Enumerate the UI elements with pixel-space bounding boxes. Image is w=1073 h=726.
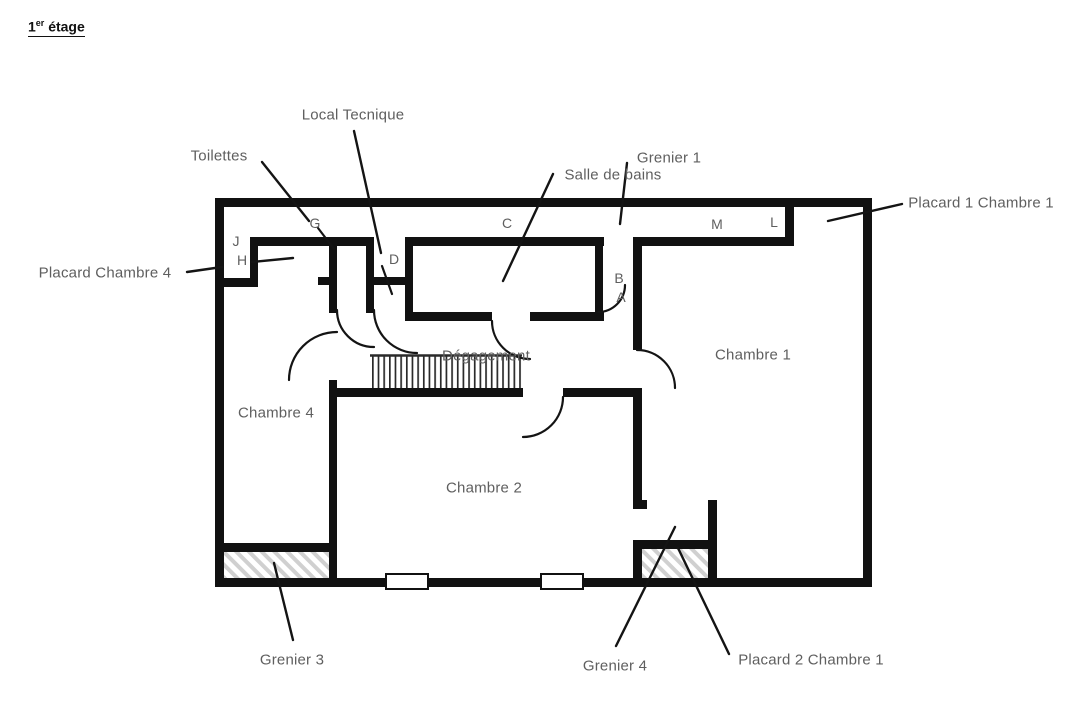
door-arc-chambre2	[523, 397, 563, 437]
window-chambre2-left	[386, 574, 428, 589]
room-label-placard-chambre-4: Placard Chambre 4	[39, 265, 172, 282]
leader-local-technique	[354, 131, 381, 253]
outer-wall-left	[215, 198, 224, 587]
door-letter-b: B	[614, 270, 623, 286]
room-label-toilettes: Toilettes	[191, 148, 248, 165]
floorplan-page: 1er étage Toilettes Local Tecnique Salle…	[0, 0, 1073, 726]
door-letter-m: M	[711, 216, 723, 232]
door-letter-g: G	[310, 215, 321, 231]
room-label-grenier-4: Grenier 4	[583, 658, 647, 675]
door-arc-chambre4	[289, 332, 337, 380]
room-label-local-technique: Local Tecnique	[302, 107, 405, 124]
door-letter-j: J	[233, 233, 240, 249]
room-label-chambre-4: Chambre 4	[238, 405, 314, 422]
door-letter-d: D	[389, 251, 399, 267]
window-chambre2-right	[541, 574, 583, 589]
room-label-chambre-2: Chambre 2	[446, 480, 522, 497]
room-label-degagement: Dégagement	[442, 348, 530, 365]
room-label-placard-2-chambre-1: Placard 2 Chambre 1	[738, 652, 884, 669]
outer-wall-right	[863, 198, 872, 587]
room-label-salle-de-bains: Salle de bains	[564, 167, 661, 184]
leader-door-h	[252, 258, 293, 262]
room-label-grenier-3: Grenier 3	[260, 652, 324, 669]
title-number: 1	[28, 19, 36, 35]
floorplan-drawing	[0, 0, 1073, 726]
room-label-placard-1-chambre-1: Placard 1 Chambre 1	[908, 195, 1054, 212]
room-label-chambre-1: Chambre 1	[715, 347, 791, 364]
room-label-grenier-1: Grenier 1	[637, 150, 701, 167]
page-title: 1er étage	[28, 18, 85, 37]
door-letter-h: H	[237, 252, 247, 268]
door-letter-a: A	[616, 289, 625, 305]
walls	[215, 198, 872, 587]
title-text: étage	[44, 19, 84, 35]
outer-wall-top	[215, 198, 872, 207]
leader-toilettes	[262, 162, 309, 221]
door-arc-chambre1	[637, 350, 675, 388]
door-arc-toilettes	[337, 310, 374, 347]
door-letter-l: L	[770, 214, 778, 230]
door-letter-c: C	[502, 215, 512, 231]
